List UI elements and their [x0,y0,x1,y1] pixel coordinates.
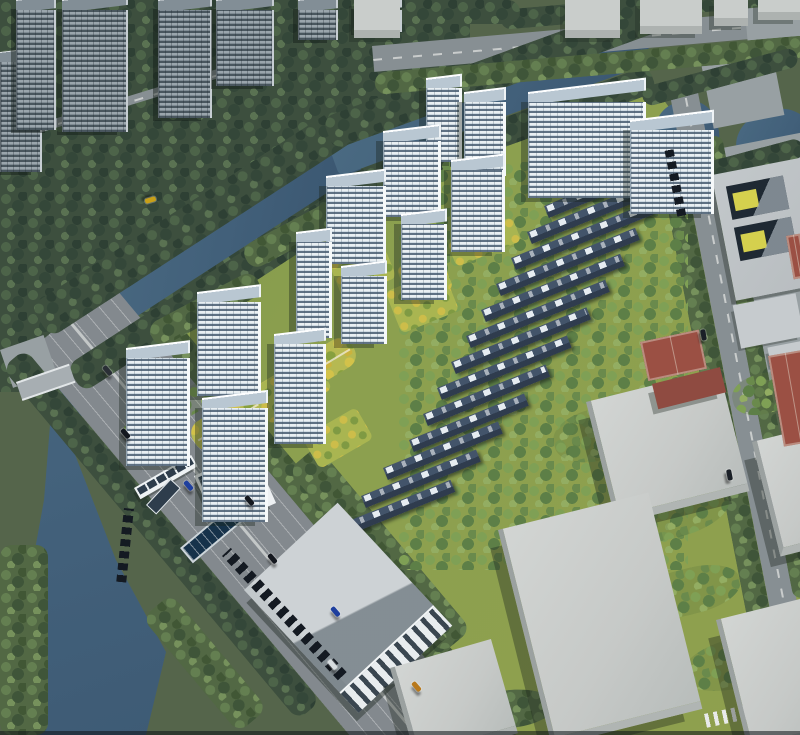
tower-facade [296,242,332,338]
residential-tower [197,292,261,396]
tower-facade [274,344,326,444]
residential-tower [296,232,332,338]
tower-facade [298,10,338,40]
residential-tower [341,266,387,344]
aerial-rendering [0,0,800,735]
tower-facade [158,10,212,118]
residential-tower [401,214,447,300]
tower-facade [401,224,447,300]
context-tower [298,0,338,40]
tower-facade [62,10,128,132]
context-building [640,0,702,34]
tower-facade [216,10,274,86]
context-building [714,0,748,26]
residential-tower [202,398,268,522]
school-wing [733,293,800,348]
context-tower [16,0,56,130]
context-tower [62,0,128,132]
roadside-tree-belt [430,0,520,24]
tower-facade [197,302,261,396]
residential-tower [383,131,441,217]
tower-facade [126,358,190,466]
riverbank-tree-belt [0,545,48,735]
tower-facade [383,141,441,217]
residential-tower [326,176,386,264]
tower-facade [528,102,646,198]
tower-facade [16,10,56,130]
tower-facade [451,170,505,252]
context-building [565,0,620,38]
image-edge-shade [0,731,800,735]
residential-tower [451,160,505,252]
context-building [354,0,400,38]
tower-facade [341,276,387,344]
tower-facade [202,408,268,522]
residential-tower [528,92,646,198]
residential-tower [126,348,190,466]
context-tower [158,0,212,118]
parked-cars [116,508,134,583]
context-building [758,0,800,20]
context-tower [216,0,274,86]
tower-facade [326,186,386,264]
residential-tower [274,334,326,444]
